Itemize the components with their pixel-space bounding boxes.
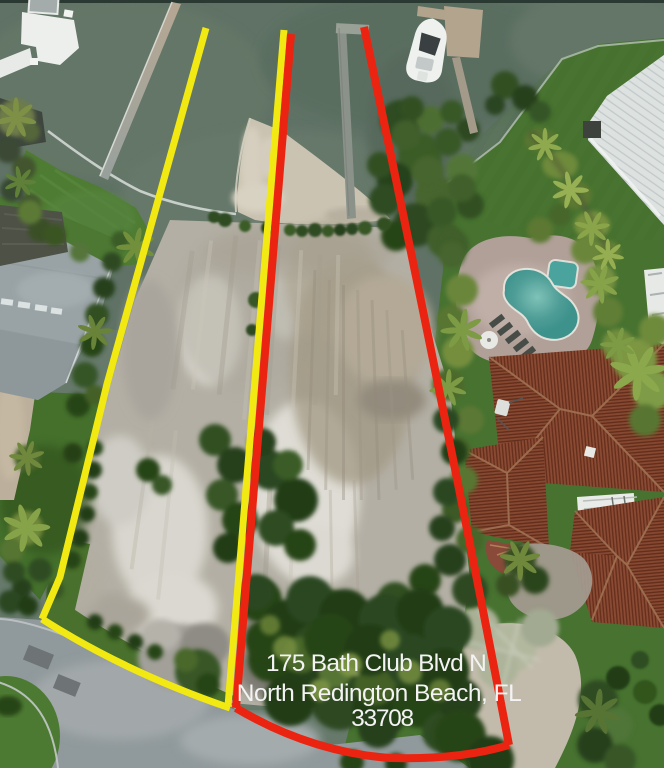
svg-text:North Redington Beach, FL: North Redington Beach, FL <box>237 680 521 707</box>
svg-text:175 Bath Club Blvd N: 175 Bath Club Blvd N <box>266 650 486 677</box>
svg-text:33708: 33708 <box>351 705 413 732</box>
